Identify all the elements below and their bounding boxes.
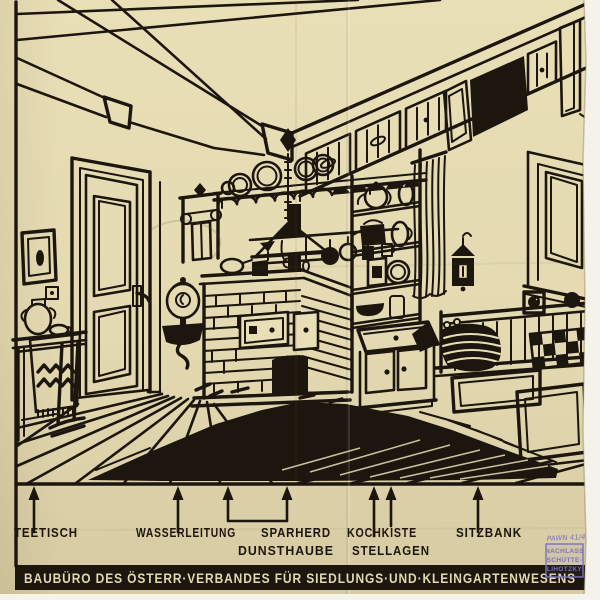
paper-bottom-margin (0, 594, 600, 600)
banner-text: BAUBÜRO DES ÖSTERR·VERBANDES FÜR SIEDLUN… (24, 571, 576, 586)
pot (362, 246, 374, 260)
label-dunsthaube: DUNSTHAUBE (238, 544, 334, 558)
dark-kettle (360, 224, 386, 246)
label-sitzbank: SITZBANK (456, 525, 522, 540)
firebox (272, 355, 308, 395)
stamp-line1: NACHLASS (545, 548, 584, 555)
label-teetisch: TEETISCH (14, 525, 78, 540)
stamp-line3: LIHOTZKY (547, 566, 582, 573)
pan (321, 247, 339, 265)
label-stellagen: STELLAGEN (352, 544, 430, 558)
label-wasserleitung: WASSERLEITUNG (136, 525, 236, 540)
label-sparherd: SPARHERD (261, 525, 331, 540)
scanned-drawing: TEETISCH WASSERLEITUNG SPARHERD KOCHKIST… (0, 0, 600, 600)
label-kochkiste: KOCHKISTE (347, 525, 417, 540)
credit-banner: BAUBÜRO DES ÖSTERR·VERBANDES FÜR SIEDLUN… (16, 566, 584, 589)
archive-stamp: PAWN 41/4 NACHLASS SCHÜTTE- LIHOTZKY (545, 533, 586, 577)
stamp-line2: SCHÜTTE- (547, 555, 583, 564)
